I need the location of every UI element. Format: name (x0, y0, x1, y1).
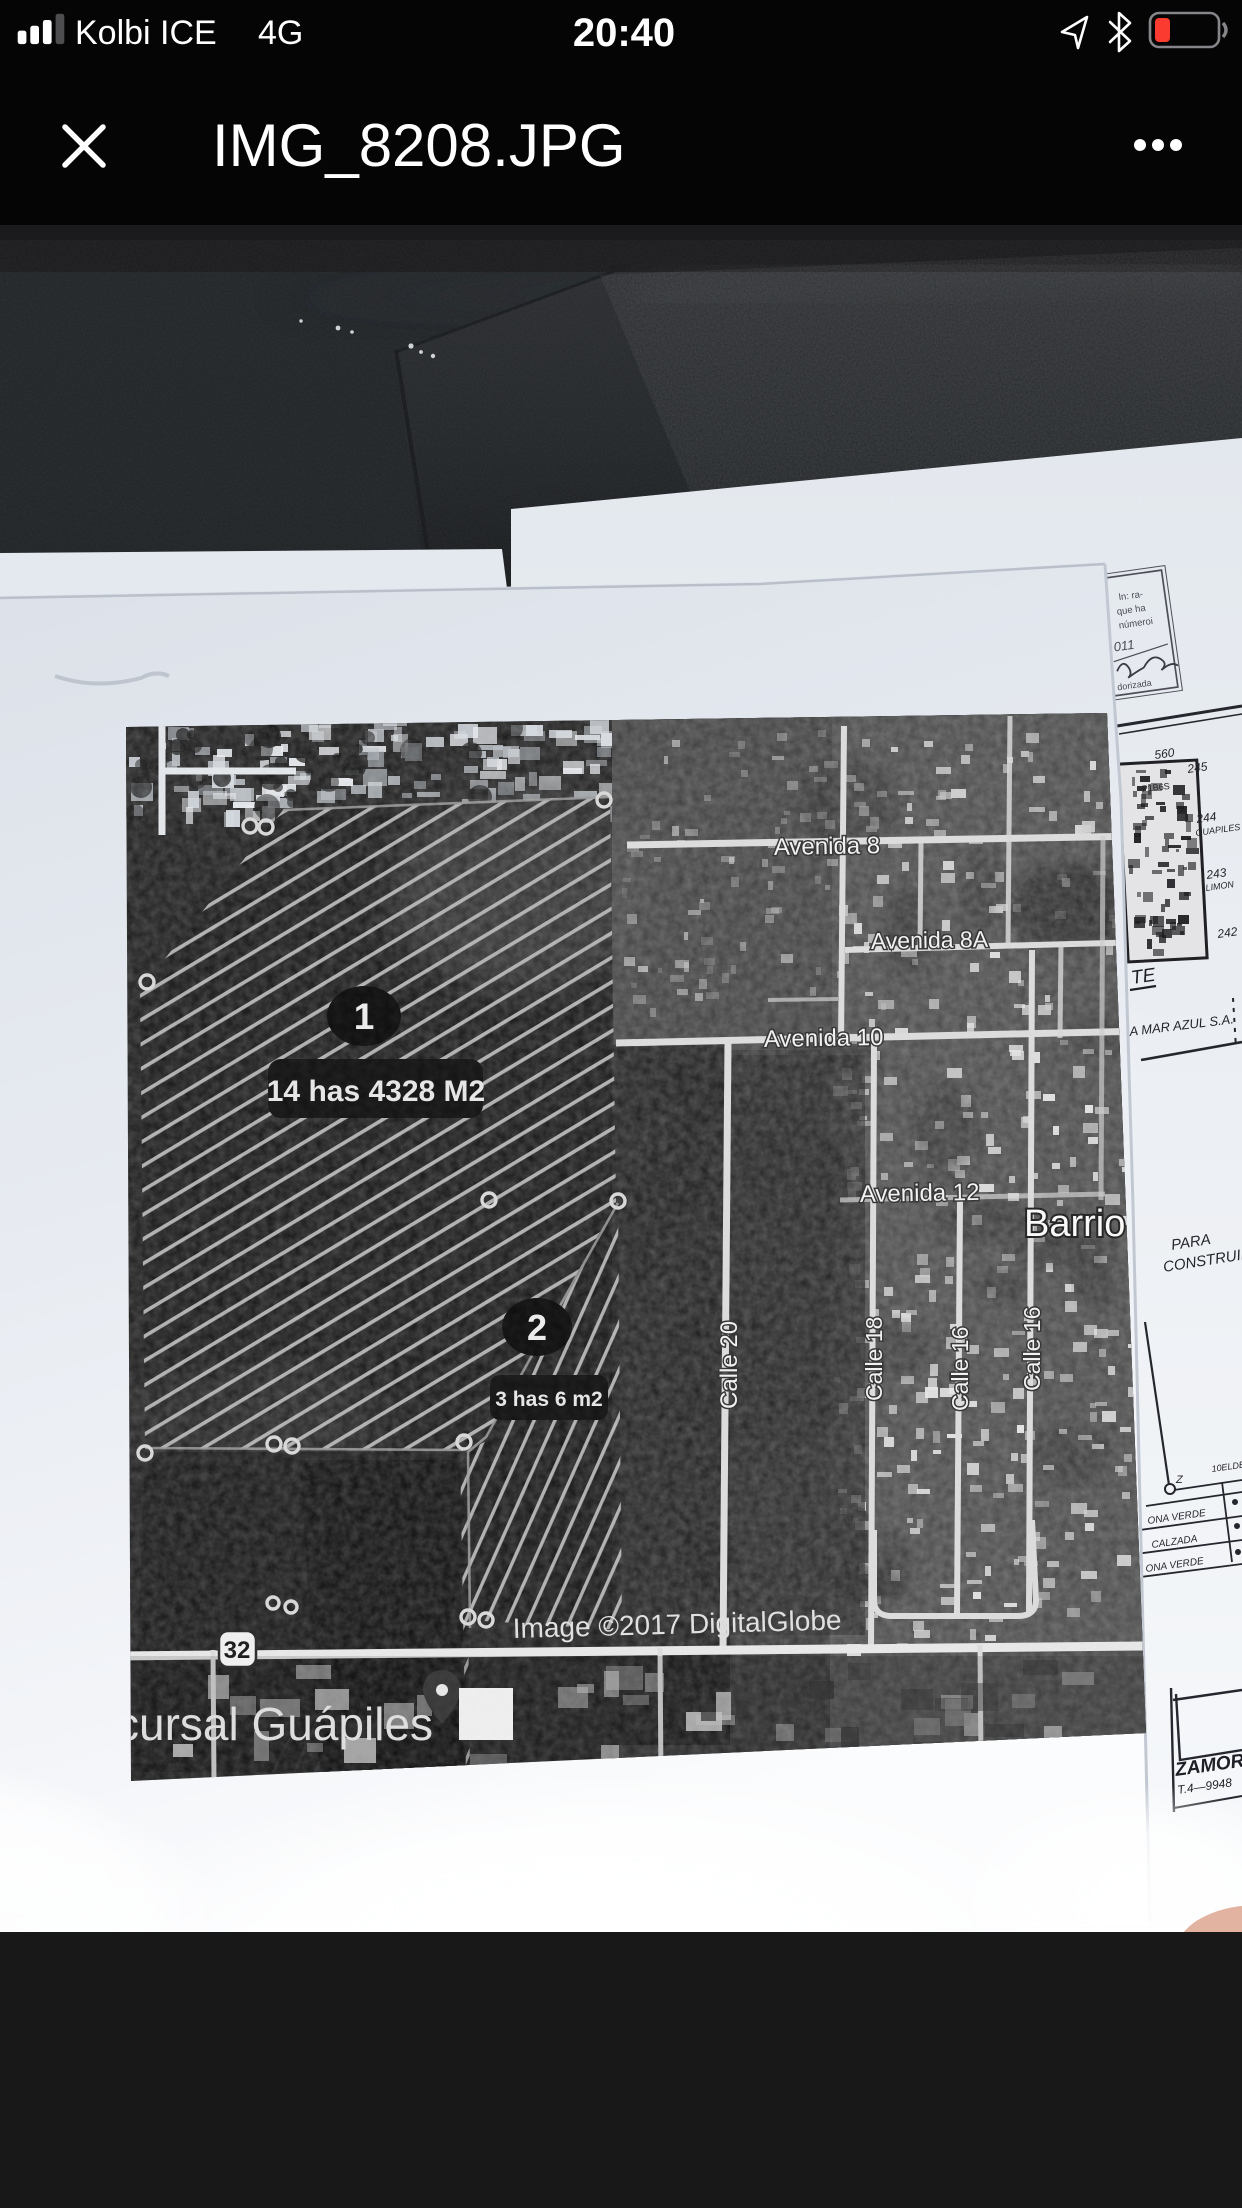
svg-text:IMG_8208.JPG: IMG_8208.JPG (212, 112, 626, 179)
svg-text:242: 242 (1215, 924, 1238, 941)
svg-text:20:40: 20:40 (573, 11, 675, 55)
svg-text:244: 244 (1194, 809, 1217, 826)
svg-text:245: 245 (1185, 759, 1208, 776)
svg-text:Z: Z (1175, 1474, 1184, 1486)
svg-text:011: 011 (1113, 637, 1136, 655)
svg-text:TE: TE (1130, 965, 1157, 989)
svg-text:4G: 4G (258, 14, 303, 52)
svg-text:560: 560 (1153, 745, 1175, 762)
svg-text:Kolbi ICE: Kolbi ICE (75, 14, 217, 52)
